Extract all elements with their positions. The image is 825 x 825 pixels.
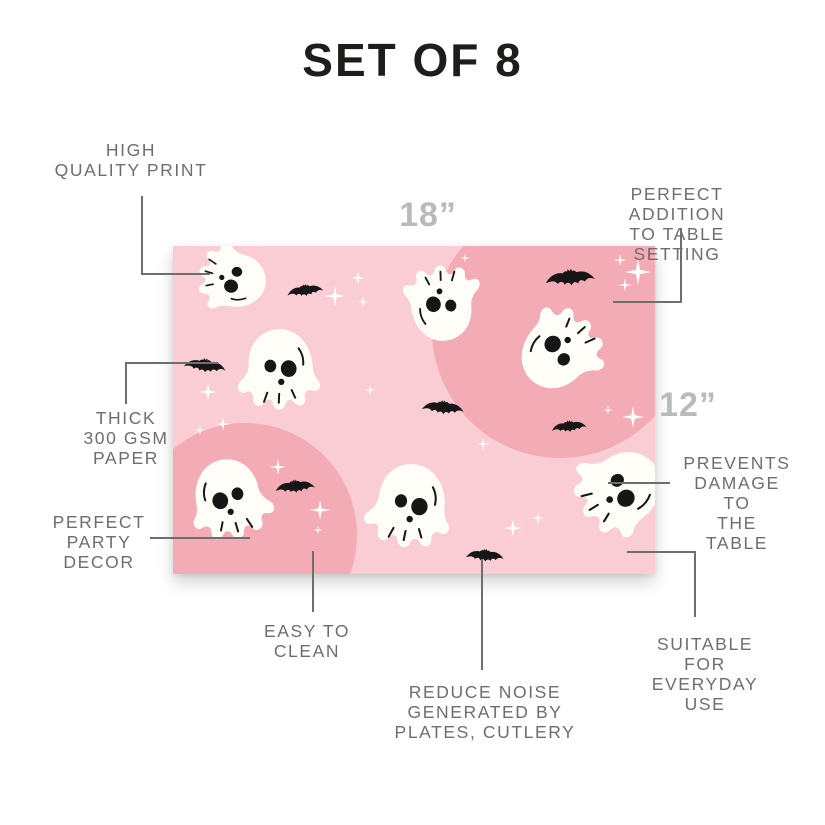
callout-easy-clean: EASY TO CLEAN [264,621,350,661]
callout-table-setting: PERFECT ADDITION TO TABLE SETTING [603,184,751,264]
callout-reduce-noise: REDUCE NOISE GENERATED BY PLATES, CUTLER… [395,682,576,742]
callout-party-decor: PERFECT PARTY DECOR [53,512,146,572]
placemat-image [173,246,655,574]
callout-prevents-damage: PREVENTS DAMAGE TO THE TABLE [683,453,790,553]
placemat-artwork [173,246,655,574]
callout-everyday-use: SUITABLE FOR EVERYDAY USE [645,634,765,714]
placemat-infographic: SET OF 8 [0,0,825,825]
callout-thick-paper: THICK 300 GSM PAPER [83,408,168,468]
height-dimension-label: 12” [659,386,717,425]
width-dimension-label: 18” [399,196,457,235]
callout-high-quality-print: HIGH QUALITY PRINT [55,140,208,180]
page-title: SET OF 8 [302,33,522,87]
